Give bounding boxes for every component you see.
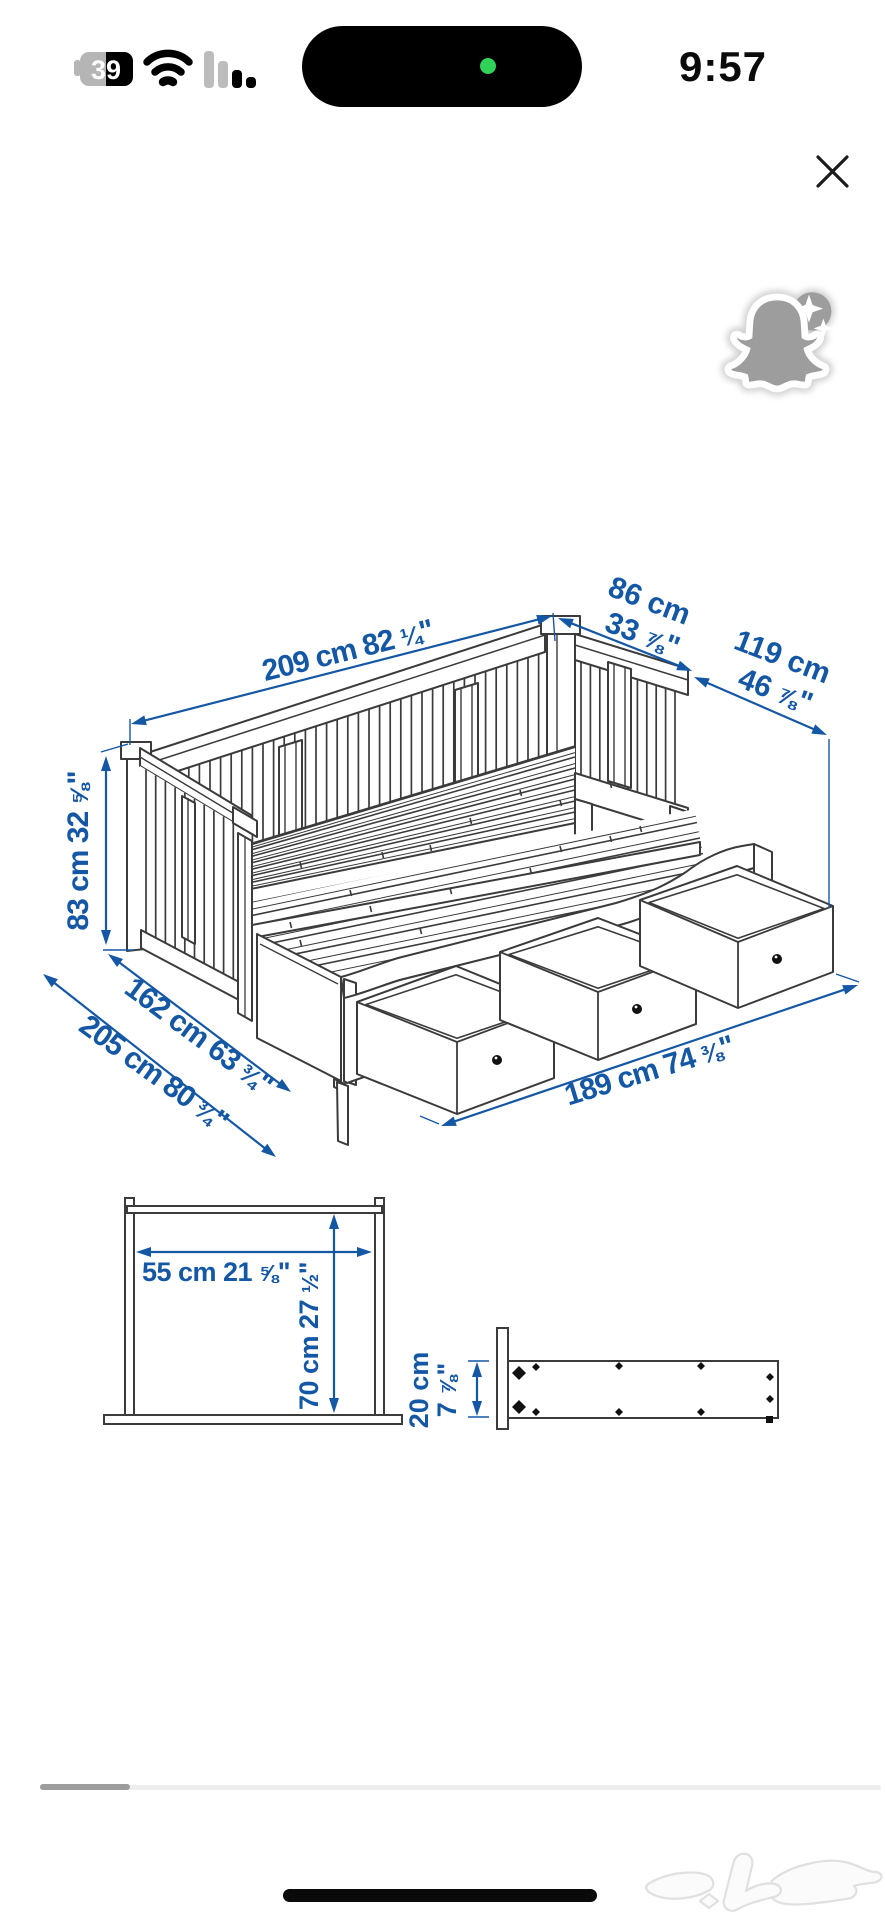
svg-text:70 cm 27 ½": 70 cm 27 ½" xyxy=(294,1262,324,1410)
svg-text:55 cm 21 ⅝": 55 cm 21 ⅝" xyxy=(142,1257,290,1287)
svg-text:83 cm 32 ⅝": 83 cm 32 ⅝" xyxy=(62,771,95,930)
svg-text:7 ⅞": 7 ⅞" xyxy=(432,1363,462,1418)
svg-text:9:57: 9:57 xyxy=(679,43,767,90)
svg-text:20 cm: 20 cm xyxy=(404,1352,434,1429)
svg-text:39: 39 xyxy=(91,55,121,85)
